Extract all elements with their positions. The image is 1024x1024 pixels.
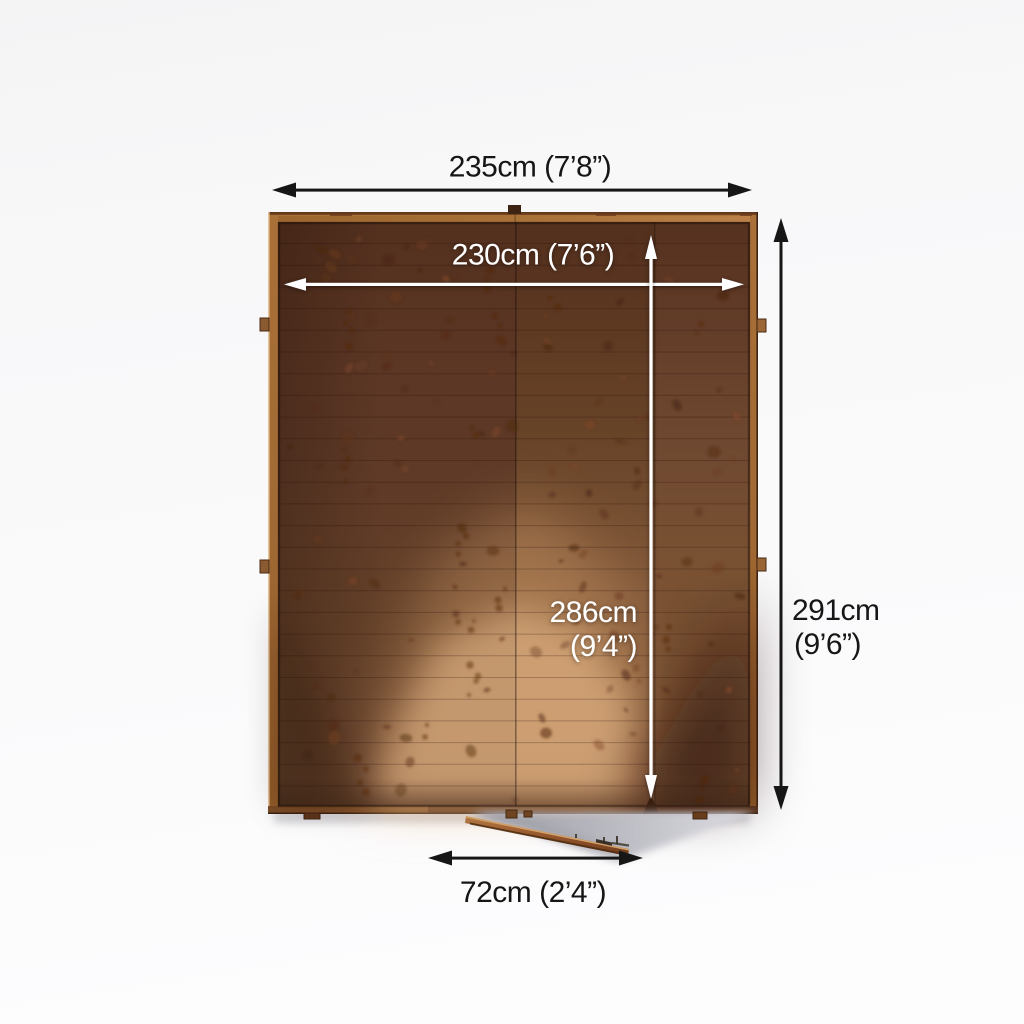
svg-text:235cm (7’8”): 235cm (7’8”) xyxy=(449,151,611,184)
svg-text:286cm: 286cm xyxy=(549,596,637,629)
svg-text:72cm (2’4”): 72cm (2’4”) xyxy=(460,876,606,909)
svg-text:230cm (7’6”): 230cm (7’6”) xyxy=(452,239,614,272)
svg-text:291cm: 291cm xyxy=(792,594,880,627)
svg-text:(9’4”): (9’4”) xyxy=(570,630,637,663)
svg-text:(9’6”): (9’6”) xyxy=(794,628,861,661)
